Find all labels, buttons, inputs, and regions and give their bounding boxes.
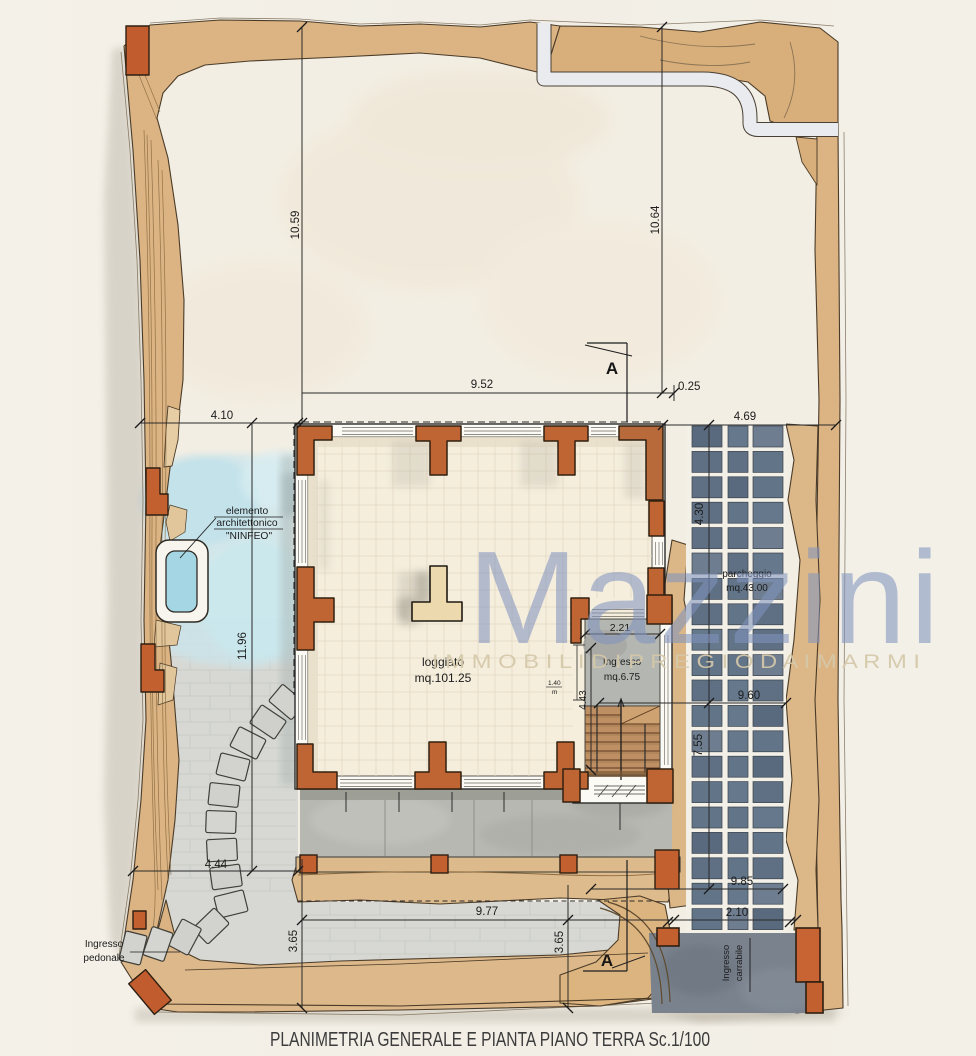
svg-text:4.10: 4.10 xyxy=(211,410,233,422)
svg-text:elemento: elemento xyxy=(226,506,269,517)
svg-text:10.64: 10.64 xyxy=(650,205,662,234)
svg-text:2.10: 2.10 xyxy=(726,907,748,919)
svg-text:3.65: 3.65 xyxy=(554,931,566,953)
svg-text:A: A xyxy=(606,359,618,378)
svg-text:10.59: 10.59 xyxy=(290,211,302,240)
svg-text:4.44: 4.44 xyxy=(205,859,228,871)
svg-text:3.65: 3.65 xyxy=(288,930,300,952)
svg-text:4.30: 4.30 xyxy=(694,503,706,525)
svg-text:9.85: 9.85 xyxy=(731,876,753,888)
svg-text:4.43: 4.43 xyxy=(578,690,589,710)
svg-text:architettonico: architettonico xyxy=(216,518,278,529)
svg-text:9.52: 9.52 xyxy=(471,379,493,391)
svg-text:1.40: 1.40 xyxy=(548,680,561,687)
svg-text:m: m xyxy=(552,689,557,696)
svg-text:Ingresso: Ingresso xyxy=(85,939,124,950)
svg-text:11.96: 11.96 xyxy=(237,632,249,660)
svg-text:mq.6.75: mq.6.75 xyxy=(604,672,641,683)
svg-text:7.55: 7.55 xyxy=(693,734,705,756)
svg-text:Ingresso: Ingresso xyxy=(721,945,732,981)
svg-text:0.25: 0.25 xyxy=(678,381,700,393)
svg-text:Mazzini: Mazzini xyxy=(468,524,943,671)
svg-text:pedonale: pedonale xyxy=(83,953,125,964)
svg-text:carrabile: carrabile xyxy=(734,945,745,981)
svg-text:A: A xyxy=(601,951,613,970)
svg-text:9.77: 9.77 xyxy=(476,906,498,918)
svg-text:4.69: 4.69 xyxy=(734,411,756,423)
svg-text:9.60: 9.60 xyxy=(738,690,760,702)
svg-text:I M M O B I L I D I P R E G: I M M O B I L I D I P R E G I O D A I M … xyxy=(432,652,920,673)
svg-text:"NINFEO": "NINFEO" xyxy=(226,531,273,542)
svg-text:mq.101.25: mq.101.25 xyxy=(415,671,472,685)
svg-text:PLANIMETRIA GENERALE E PIANTA: PLANIMETRIA GENERALE E PIANTA PIANO TERR… xyxy=(270,1029,710,1051)
